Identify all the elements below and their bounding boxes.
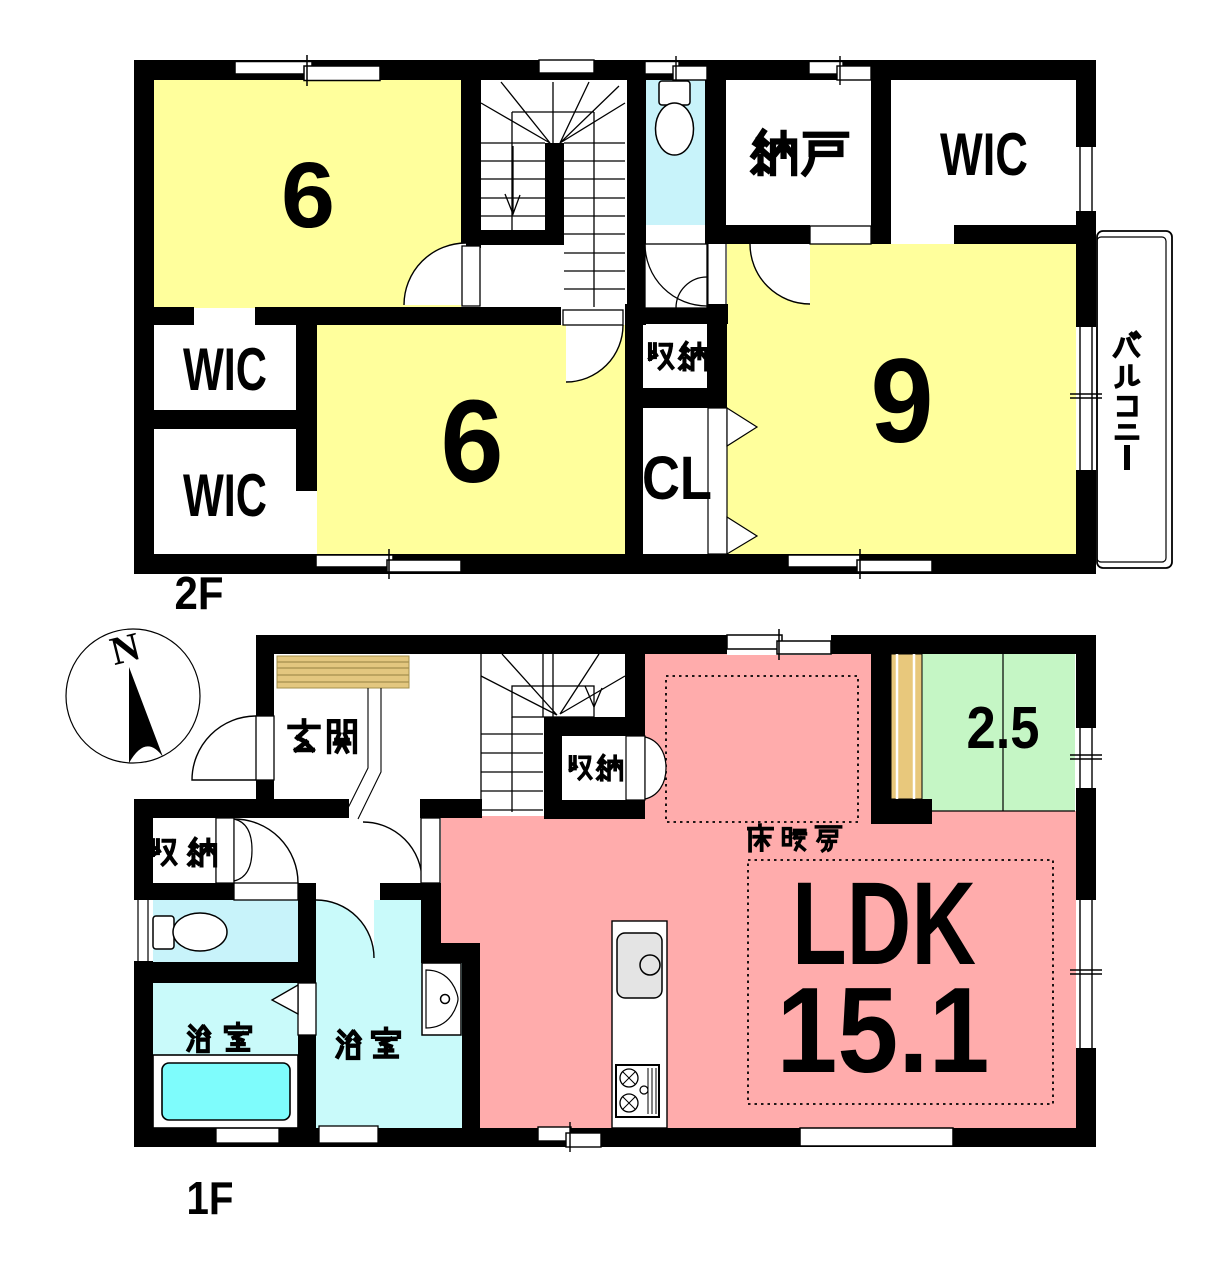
svg-text:15.1: 15.1	[777, 962, 990, 1098]
svg-text:WIC: WIC	[183, 462, 267, 529]
svg-text:6: 6	[441, 376, 504, 508]
svg-text:1F: 1F	[187, 1172, 234, 1224]
svg-text:2.5: 2.5	[967, 695, 1040, 761]
svg-text:WIC: WIC	[183, 336, 267, 403]
svg-text:2F: 2F	[175, 567, 224, 619]
svg-text:6: 6	[281, 143, 335, 247]
svg-text:WIC: WIC	[940, 121, 1028, 188]
svg-text:9: 9	[871, 334, 934, 468]
svg-text:CL: CL	[642, 444, 712, 512]
